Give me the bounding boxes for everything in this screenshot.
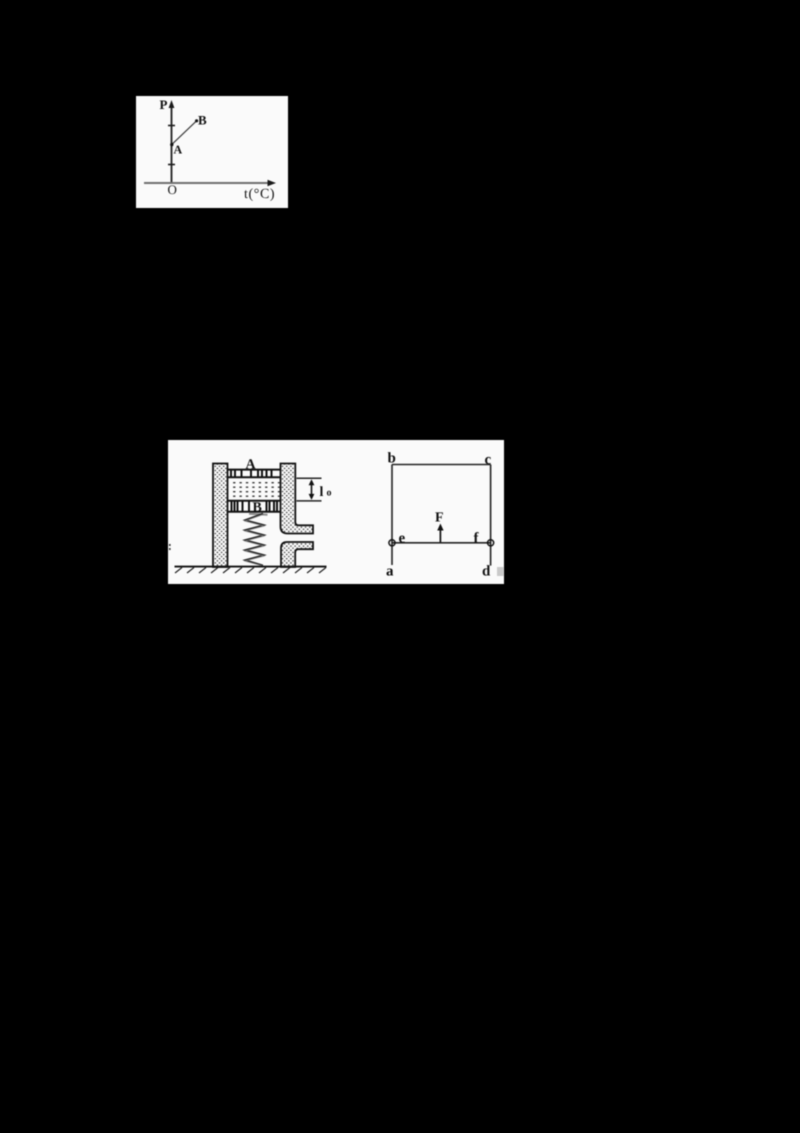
svg-text:e: e [399,531,406,547]
svg-text:d: d [482,564,491,580]
svg-text:O: O [168,182,177,197]
svg-text:b: b [388,451,396,467]
svg-text:t(°C): t(°C) [244,187,275,202]
svg-text:P: P [160,97,168,112]
svg-text:F: F [435,511,444,526]
svg-text:A: A [246,458,257,473]
svg-text:B: B [198,113,207,128]
svg-text:f: f [474,531,480,547]
svg-text:a: a [386,564,394,580]
svg-text:o: o [327,488,332,499]
svg-text:l: l [320,485,324,500]
svg-text:A: A [174,143,183,157]
svg-text:c: c [485,452,492,468]
